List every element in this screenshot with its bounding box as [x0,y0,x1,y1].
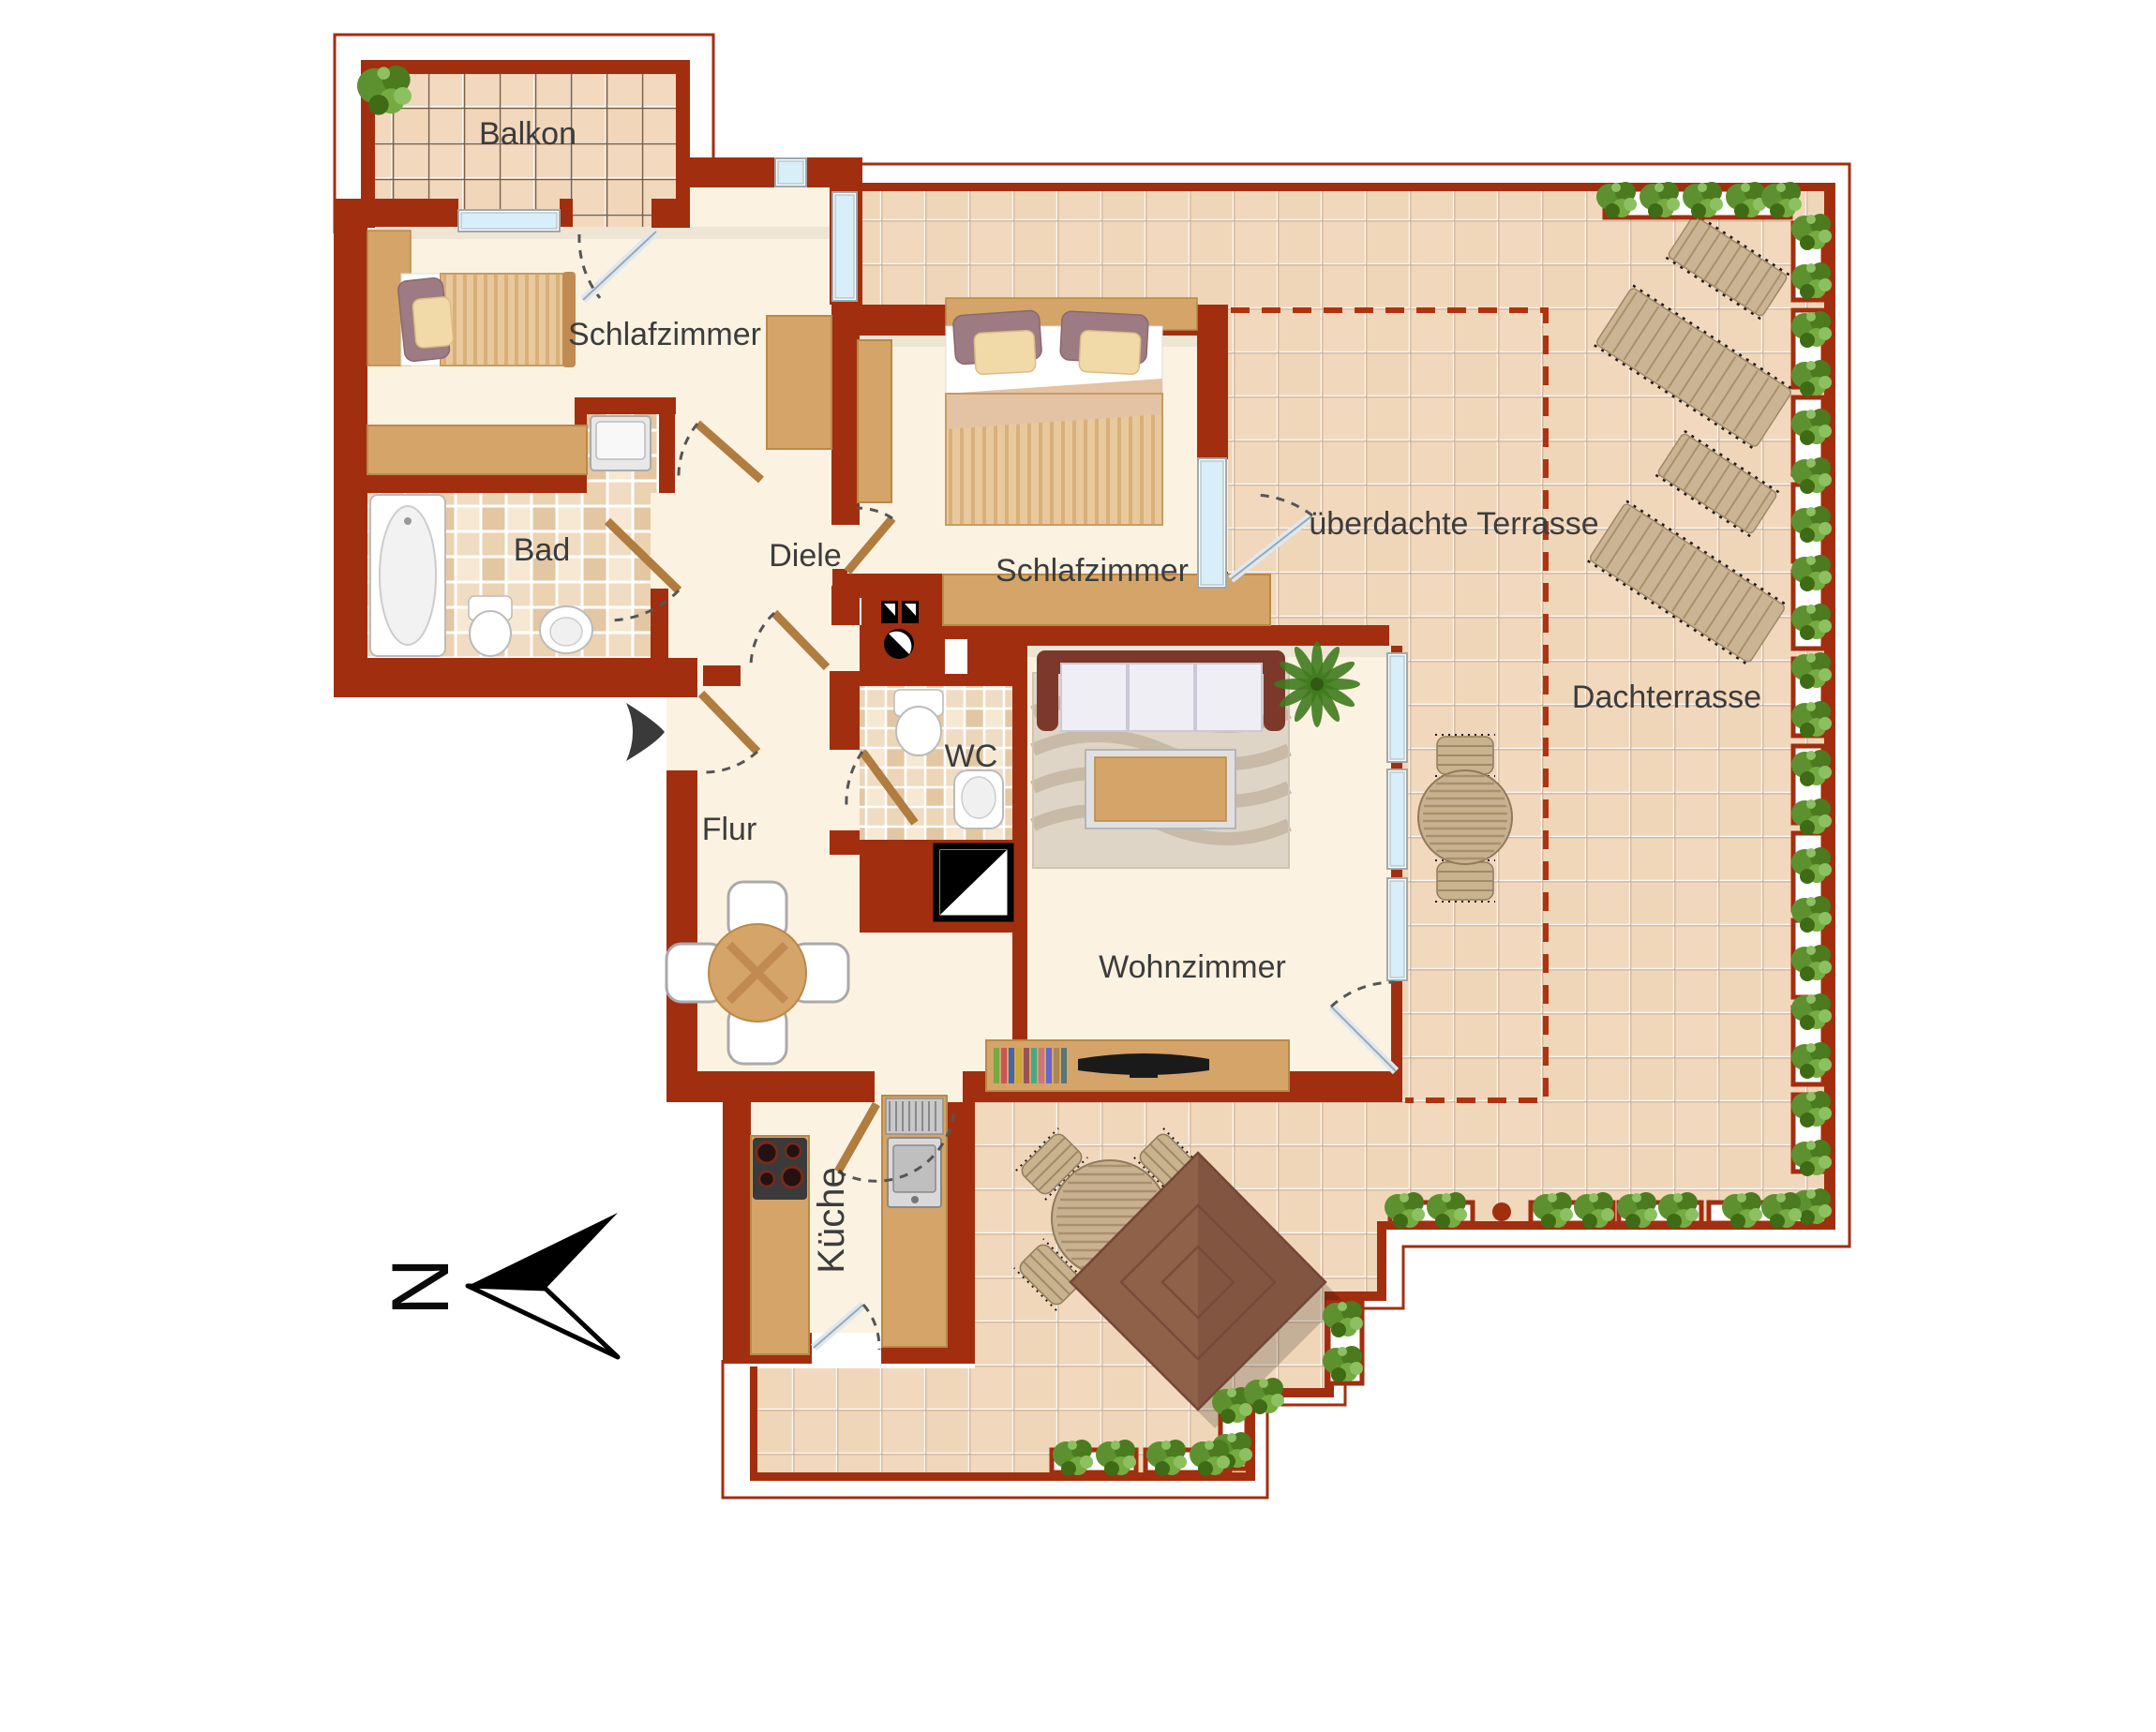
svg-text:Dachterrasse: Dachterrasse [1572,679,1761,715]
svg-text:Diele: Diele [769,538,841,574]
svg-text:WC: WC [945,739,998,774]
svg-text:Flur: Flur [702,812,757,847]
svg-text:überdachte Terrasse: überdachte Terrasse [1309,506,1598,542]
svg-text:Küche: Küche [811,1167,852,1273]
svg-text:Bad: Bad [514,532,571,568]
svg-text:Schlafzimmer: Schlafzimmer [568,317,761,352]
svg-text:N: N [376,1258,466,1316]
svg-text:Schlafzimmer: Schlafzimmer [996,553,1189,589]
svg-text:Balkon: Balkon [479,116,576,152]
svg-text:Wohnzimmer: Wohnzimmer [1099,949,1286,985]
